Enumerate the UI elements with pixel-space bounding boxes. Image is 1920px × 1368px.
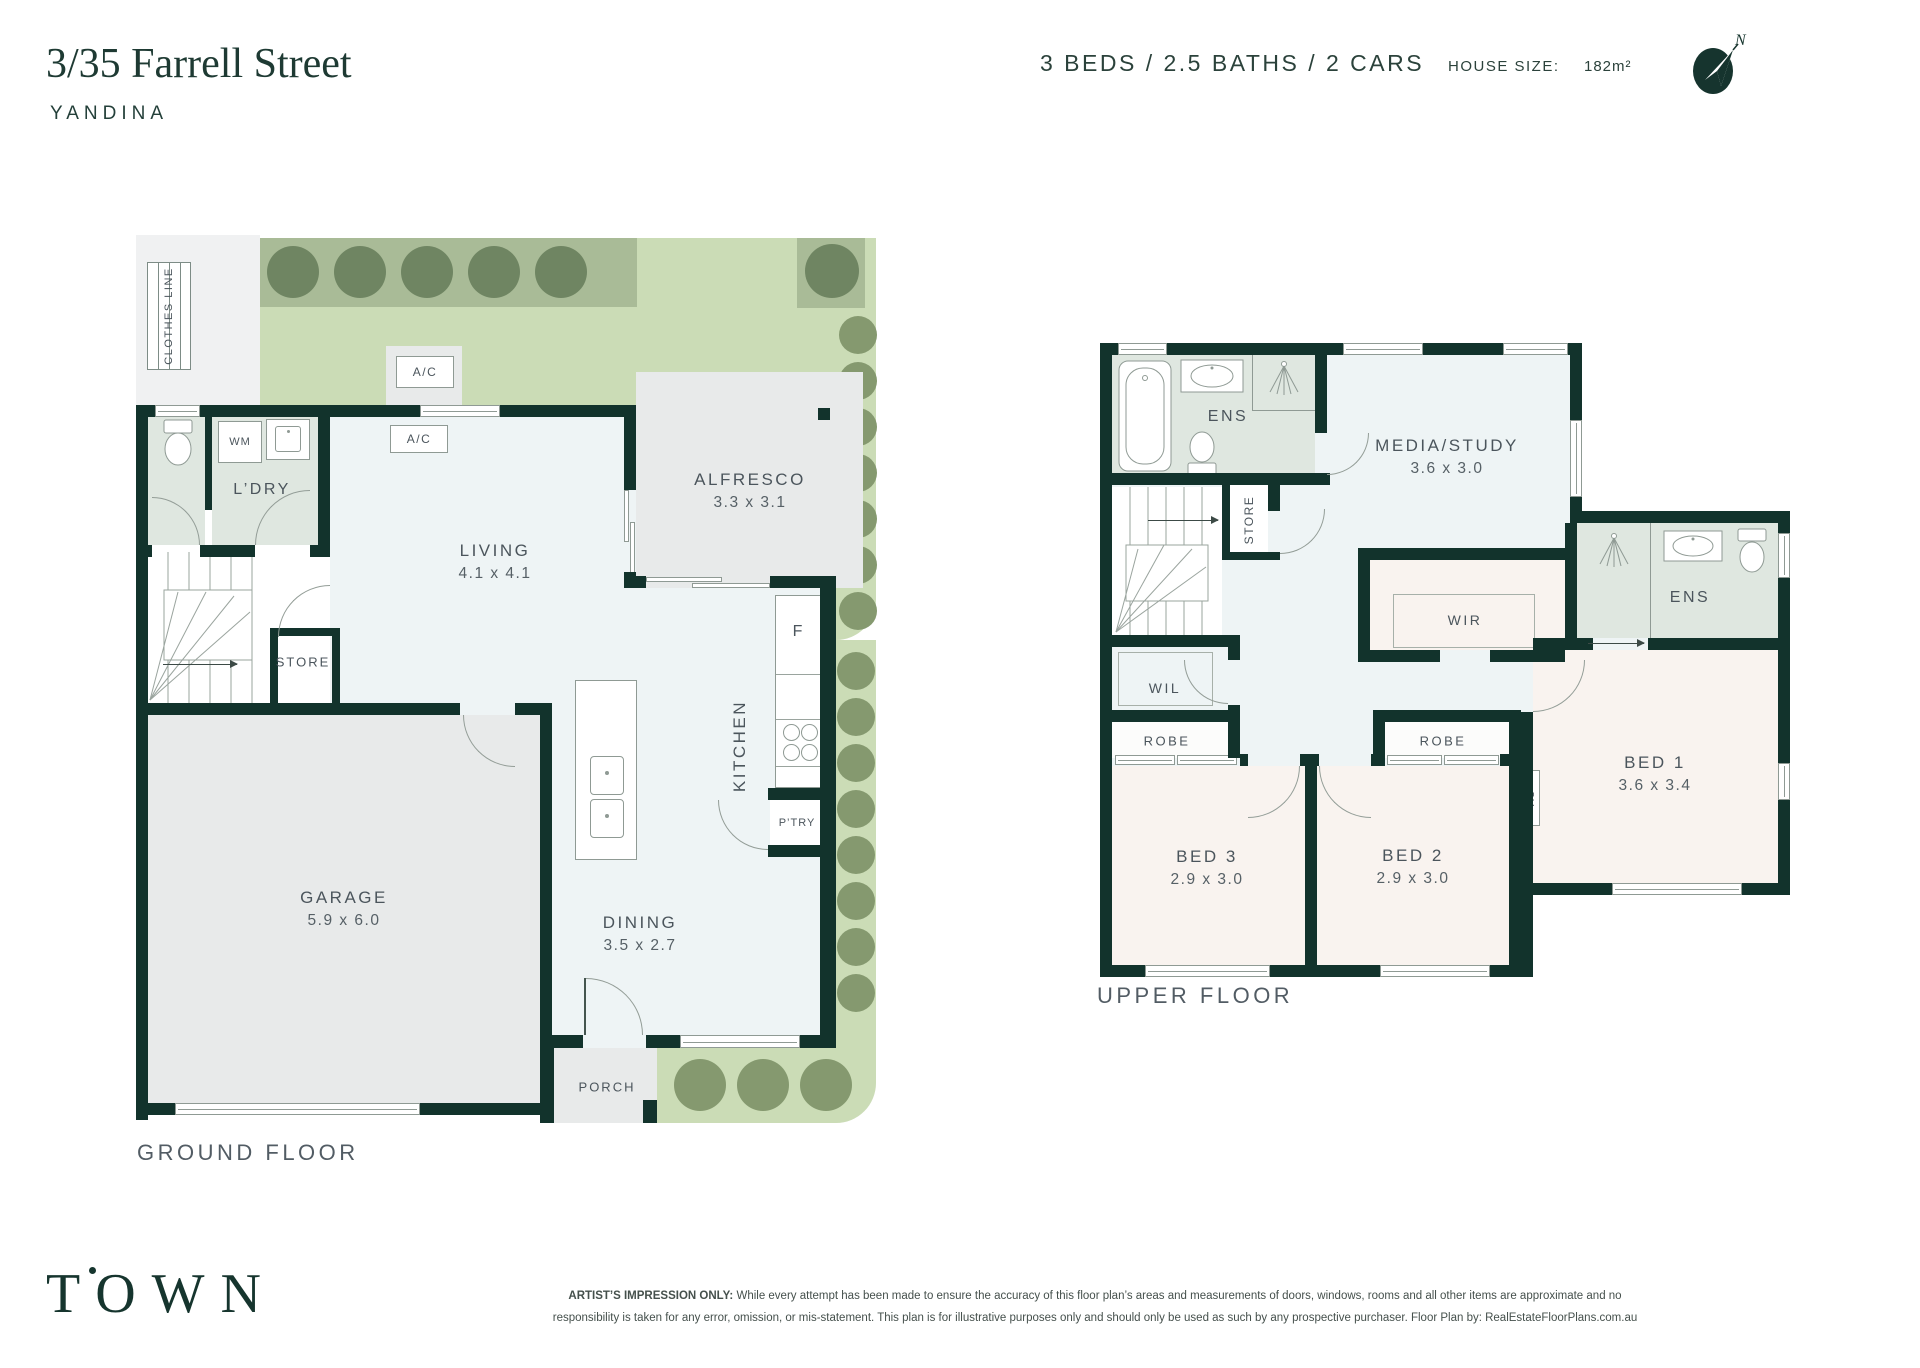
wall — [270, 628, 278, 715]
window — [1380, 965, 1490, 977]
bush-icon — [837, 790, 875, 828]
ac-indoor-unit: A/C — [390, 425, 448, 453]
wall — [820, 588, 836, 800]
wall — [1100, 473, 1330, 485]
shower-screen — [1650, 523, 1651, 638]
wall — [1167, 343, 1343, 355]
wall — [1521, 895, 1533, 977]
clothes-line-label: CLOTHES LINE — [153, 266, 185, 366]
bed3-label: BED 3 — [1176, 847, 1238, 867]
window — [420, 405, 500, 417]
wall — [500, 405, 636, 417]
sliding-door — [630, 522, 635, 574]
robe-slider — [1115, 755, 1175, 765]
fridge-label: F — [793, 623, 804, 641]
bed3-dims: 2.9 x 3.0 — [1171, 871, 1244, 889]
bed1-label: BED 1 — [1624, 753, 1686, 773]
wall — [136, 405, 155, 417]
ensuite2-label: ENS — [1670, 589, 1710, 607]
window — [1503, 343, 1568, 355]
robe-slider — [1444, 755, 1499, 765]
wall — [1570, 511, 1790, 523]
living-dims: 4.1 x 4.1 — [459, 565, 532, 583]
wall — [1240, 754, 1248, 766]
window — [1612, 883, 1742, 895]
wall — [1521, 883, 1612, 895]
bush-icon — [837, 882, 875, 920]
shower-screen — [1252, 355, 1253, 411]
exterior-cutout — [1533, 895, 1790, 977]
garage-door — [175, 1103, 420, 1115]
wall — [1565, 523, 1577, 650]
wall — [136, 1103, 175, 1115]
wall — [1222, 485, 1230, 560]
disclaimer-lead: ARTIST’S IMPRESSION ONLY: — [568, 1290, 733, 1302]
wall — [1570, 343, 1582, 420]
wall — [1358, 650, 1440, 662]
shower-screen — [1252, 410, 1316, 411]
porch-label: PORCH — [579, 1080, 636, 1095]
wall — [1358, 548, 1370, 662]
tree-icon — [401, 246, 453, 298]
store-label: STORE — [276, 655, 331, 670]
wir-label: WIR — [1448, 612, 1483, 628]
dining-dims: 3.5 x 2.7 — [604, 937, 677, 955]
kitchen-island — [575, 680, 637, 860]
wil-label: WIL — [1149, 680, 1181, 696]
shower-icon — [1594, 530, 1634, 575]
wall — [1315, 355, 1327, 433]
wall — [136, 545, 152, 557]
wall — [1268, 485, 1280, 511]
window — [1570, 420, 1582, 497]
wall — [643, 1100, 657, 1123]
bush-icon — [837, 698, 875, 736]
wall — [200, 545, 255, 557]
wall — [1423, 343, 1503, 355]
alfresco-post — [818, 408, 830, 420]
wall — [136, 703, 460, 715]
wall — [646, 1035, 680, 1048]
ensuite-entry-arrow — [1588, 643, 1644, 644]
disclaimer-line2: responsibility is taken for any error, o… — [470, 1307, 1720, 1329]
wall — [800, 1035, 836, 1048]
stair-direction-arrow — [163, 664, 237, 665]
staircase-upper — [1112, 487, 1222, 635]
wall — [1373, 710, 1521, 722]
wall — [1778, 800, 1790, 895]
bush-icon — [674, 1059, 726, 1111]
window — [1145, 965, 1270, 977]
wall — [1373, 710, 1385, 758]
wall — [820, 800, 836, 1048]
wall — [1509, 710, 1521, 965]
wall — [1778, 523, 1790, 533]
wall — [1100, 965, 1145, 977]
wall — [1270, 965, 1380, 977]
page-title: 3/35 Farrell Street — [46, 40, 352, 88]
tree-icon — [267, 246, 319, 298]
alfresco-dims: 3.3 x 3.1 — [714, 494, 787, 512]
tree-icon — [334, 246, 386, 298]
wall — [624, 576, 646, 588]
ground-floor-caption: GROUND FLOOR — [137, 1140, 359, 1166]
tree-icon — [468, 246, 520, 298]
alfresco-label: ALFRESCO — [694, 470, 806, 490]
wall — [1533, 638, 1593, 650]
bathtub-icon — [1118, 360, 1172, 477]
sliding-door — [624, 490, 629, 542]
wall — [770, 576, 836, 588]
bush-icon — [837, 652, 875, 690]
wall — [205, 417, 212, 510]
window — [1343, 343, 1423, 355]
suburb-label: YANDINA — [50, 103, 168, 125]
bush-icon — [837, 974, 875, 1012]
toilet-icon — [160, 419, 196, 472]
bush-icon — [800, 1059, 852, 1111]
bush-icon — [837, 744, 875, 782]
wall — [332, 628, 340, 715]
pantry-label: P’TRY — [779, 817, 816, 829]
wall — [1100, 343, 1112, 977]
laundry-label: L’DRY — [233, 481, 291, 499]
wall — [420, 1103, 552, 1115]
bed-bath-car-summary: 3 BEDS / 2.5 BATHS / 2 CARS — [1040, 50, 1424, 77]
disclaimer: ARTIST’S IMPRESSION ONLY: While every at… — [470, 1285, 1720, 1329]
wall — [200, 405, 330, 417]
wall — [1648, 638, 1790, 650]
wall — [1358, 548, 1565, 560]
floor-plan-page: 3/35 Farrell Street YANDINA 3 BEDS / 2.5… — [0, 0, 1920, 1368]
house-size-value: 182m² — [1584, 58, 1632, 75]
ensuite1-label: ENS — [1208, 408, 1248, 426]
tree-icon — [805, 244, 859, 298]
washing-machine: WM — [218, 421, 262, 463]
sliding-door — [692, 583, 770, 588]
vanity-sink-icon — [1180, 359, 1244, 398]
wall — [1100, 635, 1240, 647]
window — [155, 405, 200, 417]
bush-icon — [837, 836, 875, 874]
living-label: LIVING — [460, 541, 531, 561]
town-logo: TOWN — [46, 1262, 366, 1332]
toilet-icon — [1735, 528, 1769, 579]
wall — [330, 405, 420, 417]
wall — [310, 545, 330, 557]
wall — [768, 788, 836, 800]
town-logo-text: TOWN — [46, 1263, 277, 1325]
wall — [1100, 710, 1240, 722]
wall — [318, 417, 330, 557]
bed1-dims: 3.6 x 3.4 — [1619, 777, 1692, 795]
disclaimer-line1: While every attempt has been made to ens… — [733, 1290, 1621, 1302]
laundry-tub — [266, 419, 310, 460]
wall — [1228, 710, 1240, 758]
toilet-icon — [1185, 425, 1219, 476]
media-label: MEDIA/STUDY — [1375, 436, 1519, 456]
media-dims: 3.6 x 3.0 — [1411, 460, 1484, 478]
window — [1778, 533, 1790, 578]
upper-floor-caption: UPPER FLOOR — [1097, 983, 1293, 1009]
window — [1118, 343, 1167, 355]
stair-direction-arrow — [1148, 520, 1218, 521]
house-size-label: HOUSE SIZE: — [1448, 58, 1560, 75]
vanity-sink-icon — [1663, 530, 1723, 567]
sliding-door — [646, 577, 722, 582]
garage-label: GARAGE — [300, 888, 388, 908]
wall — [1521, 712, 1533, 895]
wall — [1742, 883, 1790, 895]
window — [1778, 763, 1790, 800]
wall — [624, 405, 636, 490]
garage-dims: 5.9 x 6.0 — [308, 912, 381, 930]
bush-icon — [839, 592, 877, 630]
compass-north-label: N — [1735, 32, 1746, 50]
wall — [1228, 647, 1240, 660]
bush-icon — [839, 316, 877, 354]
tree-icon — [535, 246, 587, 298]
wall — [1300, 754, 1319, 766]
kitchen-label: KITCHEN — [731, 686, 749, 806]
wall — [540, 1035, 583, 1048]
robe-slider — [1387, 755, 1442, 765]
bed2-dims: 2.9 x 3.0 — [1377, 870, 1450, 888]
shower-icon — [1264, 358, 1304, 403]
exterior-cutout — [1582, 343, 1790, 511]
door-leaf — [584, 978, 586, 1035]
bush-icon — [837, 928, 875, 966]
bush-icon — [737, 1059, 789, 1111]
logo-dot-icon — [89, 1267, 96, 1274]
staircase — [148, 552, 270, 703]
wall — [540, 1048, 554, 1123]
robe1-label: ROBE — [1144, 734, 1191, 749]
dining-label: DINING — [603, 913, 678, 933]
window — [680, 1035, 800, 1048]
ac-outdoor-unit: A/C — [396, 356, 454, 388]
wall — [1305, 766, 1317, 965]
wall — [1778, 578, 1790, 763]
bed2-label: BED 2 — [1382, 846, 1444, 866]
upper-store-label: STORE — [1241, 480, 1257, 560]
robe2-label: ROBE — [1420, 734, 1467, 749]
wall — [136, 405, 148, 1120]
